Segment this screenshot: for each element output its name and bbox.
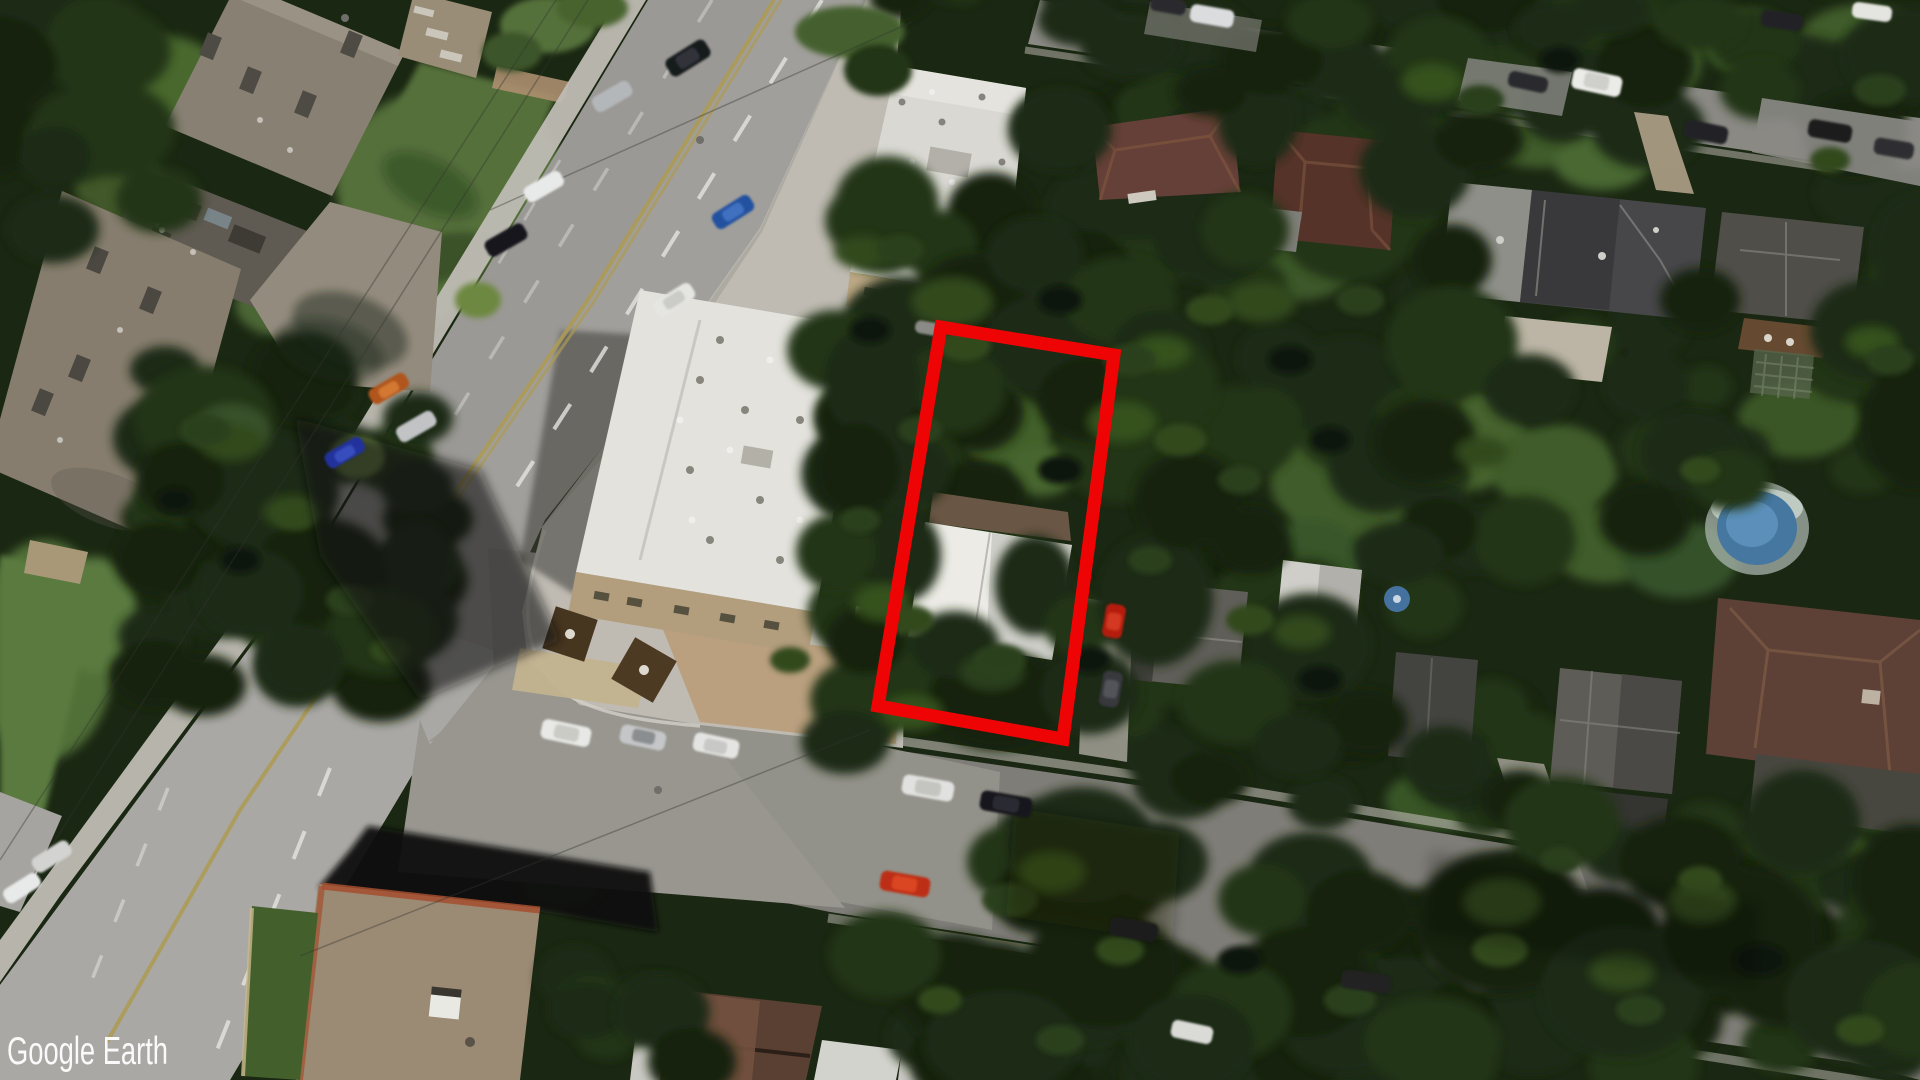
- svg-text:Google Earth: Google Earth: [7, 1030, 168, 1073]
